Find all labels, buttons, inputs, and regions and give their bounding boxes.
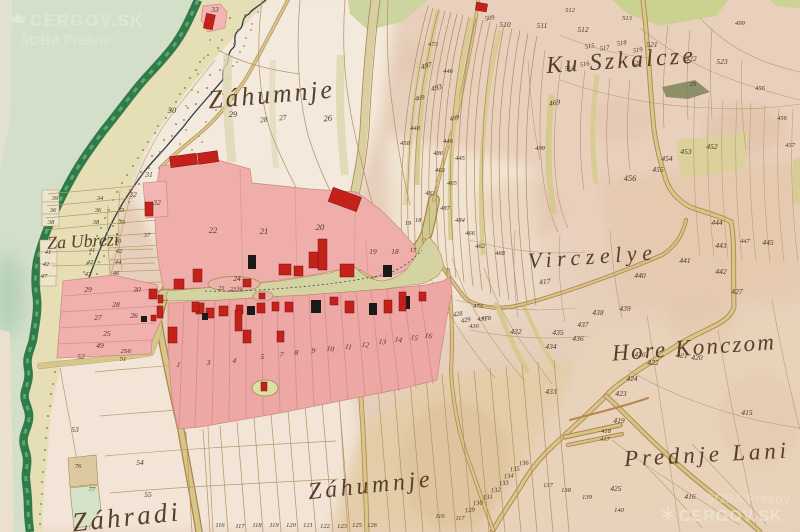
svg-text:116: 116 xyxy=(215,522,225,529)
svg-text:49: 49 xyxy=(96,341,104,350)
svg-text:36: 36 xyxy=(49,207,57,214)
svg-text:419: 419 xyxy=(613,416,625,425)
svg-text:440: 440 xyxy=(634,271,646,280)
svg-text:473: 473 xyxy=(473,303,484,310)
svg-text:30: 30 xyxy=(167,105,177,115)
svg-text:28: 28 xyxy=(260,115,269,125)
svg-text:38: 38 xyxy=(47,219,55,226)
svg-text:44: 44 xyxy=(115,259,122,266)
svg-text:444: 444 xyxy=(711,218,723,227)
svg-text:17: 17 xyxy=(410,247,417,254)
svg-text:443: 443 xyxy=(715,241,727,250)
svg-text:52: 52 xyxy=(77,352,85,361)
svg-text:121: 121 xyxy=(303,522,313,529)
svg-text:452: 452 xyxy=(706,142,718,151)
svg-text:23: 23 xyxy=(218,285,225,292)
svg-text:463: 463 xyxy=(435,167,446,174)
svg-text:511: 511 xyxy=(537,21,548,30)
svg-text:512: 512 xyxy=(577,25,589,34)
svg-text:432: 432 xyxy=(510,327,522,336)
svg-text:123: 123 xyxy=(337,523,348,530)
svg-text:25⁄6: 25⁄6 xyxy=(121,348,133,355)
svg-text:446: 446 xyxy=(443,138,454,145)
svg-text:19: 19 xyxy=(405,220,412,227)
svg-text:465: 465 xyxy=(447,180,458,187)
svg-text:39: 39 xyxy=(51,195,59,202)
svg-text:499: 499 xyxy=(535,145,546,152)
svg-text:468: 468 xyxy=(495,250,506,257)
svg-text:46: 46 xyxy=(113,270,120,277)
svg-text:139: 139 xyxy=(582,494,593,501)
svg-text:34: 34 xyxy=(96,195,104,202)
svg-text:37: 37 xyxy=(143,232,151,239)
svg-text:447: 447 xyxy=(740,238,751,245)
svg-text:483: 483 xyxy=(425,190,436,197)
svg-text:486: 486 xyxy=(433,150,444,157)
svg-text:433: 433 xyxy=(545,387,557,396)
svg-text:131: 131 xyxy=(483,494,493,502)
svg-text:122: 122 xyxy=(320,523,331,530)
svg-text:458: 458 xyxy=(400,140,411,147)
svg-text:415: 415 xyxy=(741,408,753,417)
svg-text:36: 36 xyxy=(94,207,102,214)
svg-text:28: 28 xyxy=(112,300,120,309)
svg-text:523: 523 xyxy=(716,57,728,66)
svg-text:ŠOBA Prešov: ŠOBA Prešov xyxy=(20,31,111,48)
svg-text:510: 510 xyxy=(499,20,511,29)
svg-text:436: 436 xyxy=(572,334,584,343)
svg-text:21: 21 xyxy=(260,226,269,236)
svg-text:119: 119 xyxy=(269,522,279,529)
svg-text:42: 42 xyxy=(43,261,50,268)
svg-text:438: 438 xyxy=(592,308,604,317)
svg-text:456: 456 xyxy=(777,115,788,122)
svg-text:445: 445 xyxy=(455,155,466,162)
svg-text:454: 454 xyxy=(661,154,673,163)
svg-text:456: 456 xyxy=(624,173,638,183)
svg-text:431: 431 xyxy=(477,316,487,323)
svg-text:30: 30 xyxy=(132,285,141,294)
svg-text:418: 418 xyxy=(601,428,612,435)
svg-text:453: 453 xyxy=(680,147,692,156)
svg-text:54: 54 xyxy=(136,458,144,467)
svg-text:24: 24 xyxy=(233,274,241,283)
svg-text:18: 18 xyxy=(415,217,422,224)
svg-text:33: 33 xyxy=(210,5,219,14)
svg-text:25: 25 xyxy=(690,81,697,88)
svg-text:53: 53 xyxy=(71,425,79,434)
svg-text:27: 27 xyxy=(279,113,288,123)
svg-text:32: 32 xyxy=(152,198,161,207)
svg-text:456: 456 xyxy=(755,85,766,92)
svg-text:416: 416 xyxy=(684,492,696,501)
svg-text:18: 18 xyxy=(391,247,399,256)
svg-text:437: 437 xyxy=(577,320,589,329)
svg-text:439: 439 xyxy=(619,304,631,313)
svg-text:CERGOV.SK: CERGOV.SK xyxy=(30,11,144,30)
svg-text:25: 25 xyxy=(103,329,111,338)
svg-text:434: 434 xyxy=(545,342,557,351)
svg-text:19: 19 xyxy=(369,247,377,256)
svg-text:55: 55 xyxy=(144,490,152,499)
svg-text:446: 446 xyxy=(443,68,454,75)
svg-text:427: 427 xyxy=(731,287,743,296)
svg-text:473: 473 xyxy=(428,41,439,48)
svg-text:Za Ubrezi: Za Ubrezi xyxy=(47,229,120,253)
svg-text:466: 466 xyxy=(465,230,476,237)
svg-text:423: 423 xyxy=(615,389,627,398)
svg-text:455: 455 xyxy=(652,165,664,174)
svg-text:38: 38 xyxy=(92,219,100,226)
svg-text:51: 51 xyxy=(120,356,127,363)
svg-text:32: 32 xyxy=(128,190,137,199)
svg-text:26: 26 xyxy=(323,113,333,124)
svg-text:116: 116 xyxy=(435,513,445,520)
svg-text:ŠOBA Prešov: ŠOBA Prešov xyxy=(706,491,791,506)
svg-text:29: 29 xyxy=(84,285,92,294)
svg-text:425: 425 xyxy=(610,484,622,493)
svg-text:23⅚: 23⅚ xyxy=(230,286,244,293)
svg-text:430: 430 xyxy=(469,323,480,330)
svg-text:448: 448 xyxy=(410,125,421,132)
svg-text:33: 33 xyxy=(117,207,125,214)
svg-text:117: 117 xyxy=(455,515,465,522)
svg-text:512: 512 xyxy=(565,7,576,14)
svg-text:435: 435 xyxy=(552,328,564,337)
svg-text:22: 22 xyxy=(209,225,218,235)
svg-text:26: 26 xyxy=(130,311,138,320)
svg-text:457: 457 xyxy=(785,142,796,149)
svg-text:442: 442 xyxy=(715,267,727,276)
svg-text:77: 77 xyxy=(89,486,96,493)
svg-text:441: 441 xyxy=(679,256,690,265)
svg-text:31: 31 xyxy=(144,170,153,179)
svg-text:47: 47 xyxy=(85,271,92,278)
svg-text:417: 417 xyxy=(539,277,551,287)
svg-text:137: 137 xyxy=(543,482,554,489)
svg-text:484: 484 xyxy=(455,217,466,224)
svg-text:126: 126 xyxy=(367,522,378,529)
svg-text:462: 462 xyxy=(475,243,486,250)
svg-text:35: 35 xyxy=(118,219,126,226)
svg-text:424: 424 xyxy=(626,374,638,383)
svg-text:129: 129 xyxy=(465,507,476,515)
svg-text:125: 125 xyxy=(352,522,363,529)
svg-text:117: 117 xyxy=(235,523,245,530)
svg-text:CERGOV.SK: CERGOV.SK xyxy=(679,508,783,525)
svg-text:499: 499 xyxy=(735,20,746,27)
svg-text:136: 136 xyxy=(519,460,530,468)
svg-text:138: 138 xyxy=(561,487,572,494)
svg-text:20: 20 xyxy=(316,222,325,232)
svg-text:120: 120 xyxy=(286,522,297,529)
svg-text:47: 47 xyxy=(41,273,48,280)
svg-text:487: 487 xyxy=(440,205,451,212)
svg-text:76: 76 xyxy=(75,463,82,470)
svg-text:27: 27 xyxy=(94,313,102,322)
svg-text:513: 513 xyxy=(622,15,633,22)
svg-text:445: 445 xyxy=(762,238,774,247)
svg-text:417: 417 xyxy=(600,436,611,443)
svg-text:42: 42 xyxy=(87,259,94,266)
svg-text:118: 118 xyxy=(252,522,262,529)
svg-text:140: 140 xyxy=(614,507,625,514)
